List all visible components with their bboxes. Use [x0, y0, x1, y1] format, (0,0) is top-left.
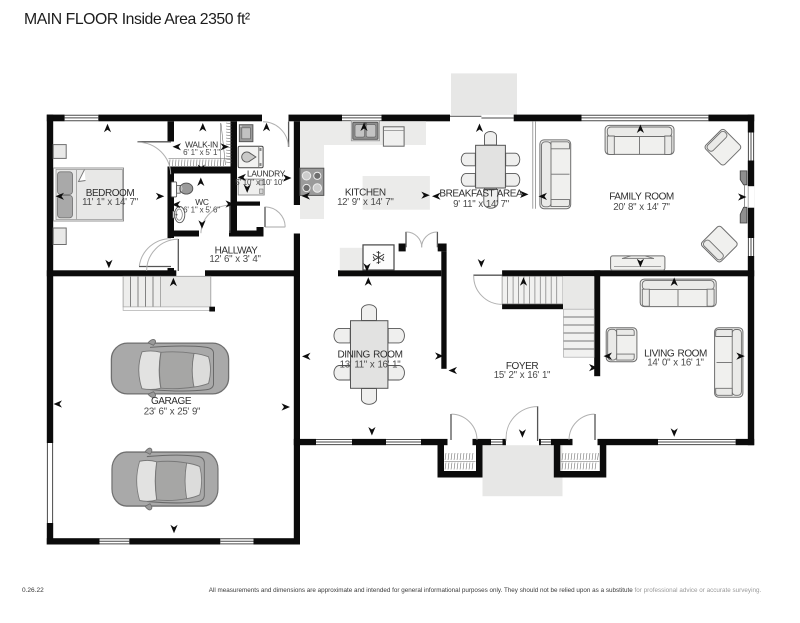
svg-text:12' 6" x 3' 4": 12' 6" x 3' 4" — [209, 254, 261, 265]
svg-text:12' 9" x 14' 7": 12' 9" x 14' 7" — [337, 197, 394, 208]
svg-text:9' 11" x 14' 7": 9' 11" x 14' 7" — [453, 199, 510, 210]
svg-text:0.26.22: 0.26.22 — [22, 587, 44, 594]
svg-text:FAMILY ROOM: FAMILY ROOM — [609, 192, 674, 203]
svg-text:14' 0" x 16' 1": 14' 0" x 16' 1" — [647, 358, 704, 369]
svg-text:13' 11" x 16' 1": 13' 11" x 16' 1" — [340, 359, 402, 370]
svg-text:15' 2" x 16' 1": 15' 2" x 16' 1" — [494, 370, 551, 381]
svg-text:23' 6" x 25' 9": 23' 6" x 25' 9" — [144, 407, 201, 418]
svg-text:All measurements and dimension: All measurements and dimensions are appr… — [209, 587, 762, 594]
svg-text:11' 1" x 14' 7": 11' 1" x 14' 7" — [82, 197, 139, 208]
svg-text:LAUNDRY: LAUNDRY — [247, 169, 286, 179]
svg-text:20' 8" x 14' 7": 20' 8" x 14' 7" — [613, 202, 670, 213]
svg-text:BREAKFAST AREA: BREAKFAST AREA — [439, 189, 523, 200]
svg-text:6' 1" x 5' 1": 6' 1" x 5' 1" — [183, 148, 220, 157]
svg-text:6' 1" x 5' 6": 6' 1" x 5' 6" — [183, 206, 220, 215]
svg-text:GARAGE: GARAGE — [151, 396, 192, 407]
svg-text:MAIN FLOOR Inside Area 2350 ft: MAIN FLOOR Inside Area 2350 ft² — [24, 11, 250, 28]
